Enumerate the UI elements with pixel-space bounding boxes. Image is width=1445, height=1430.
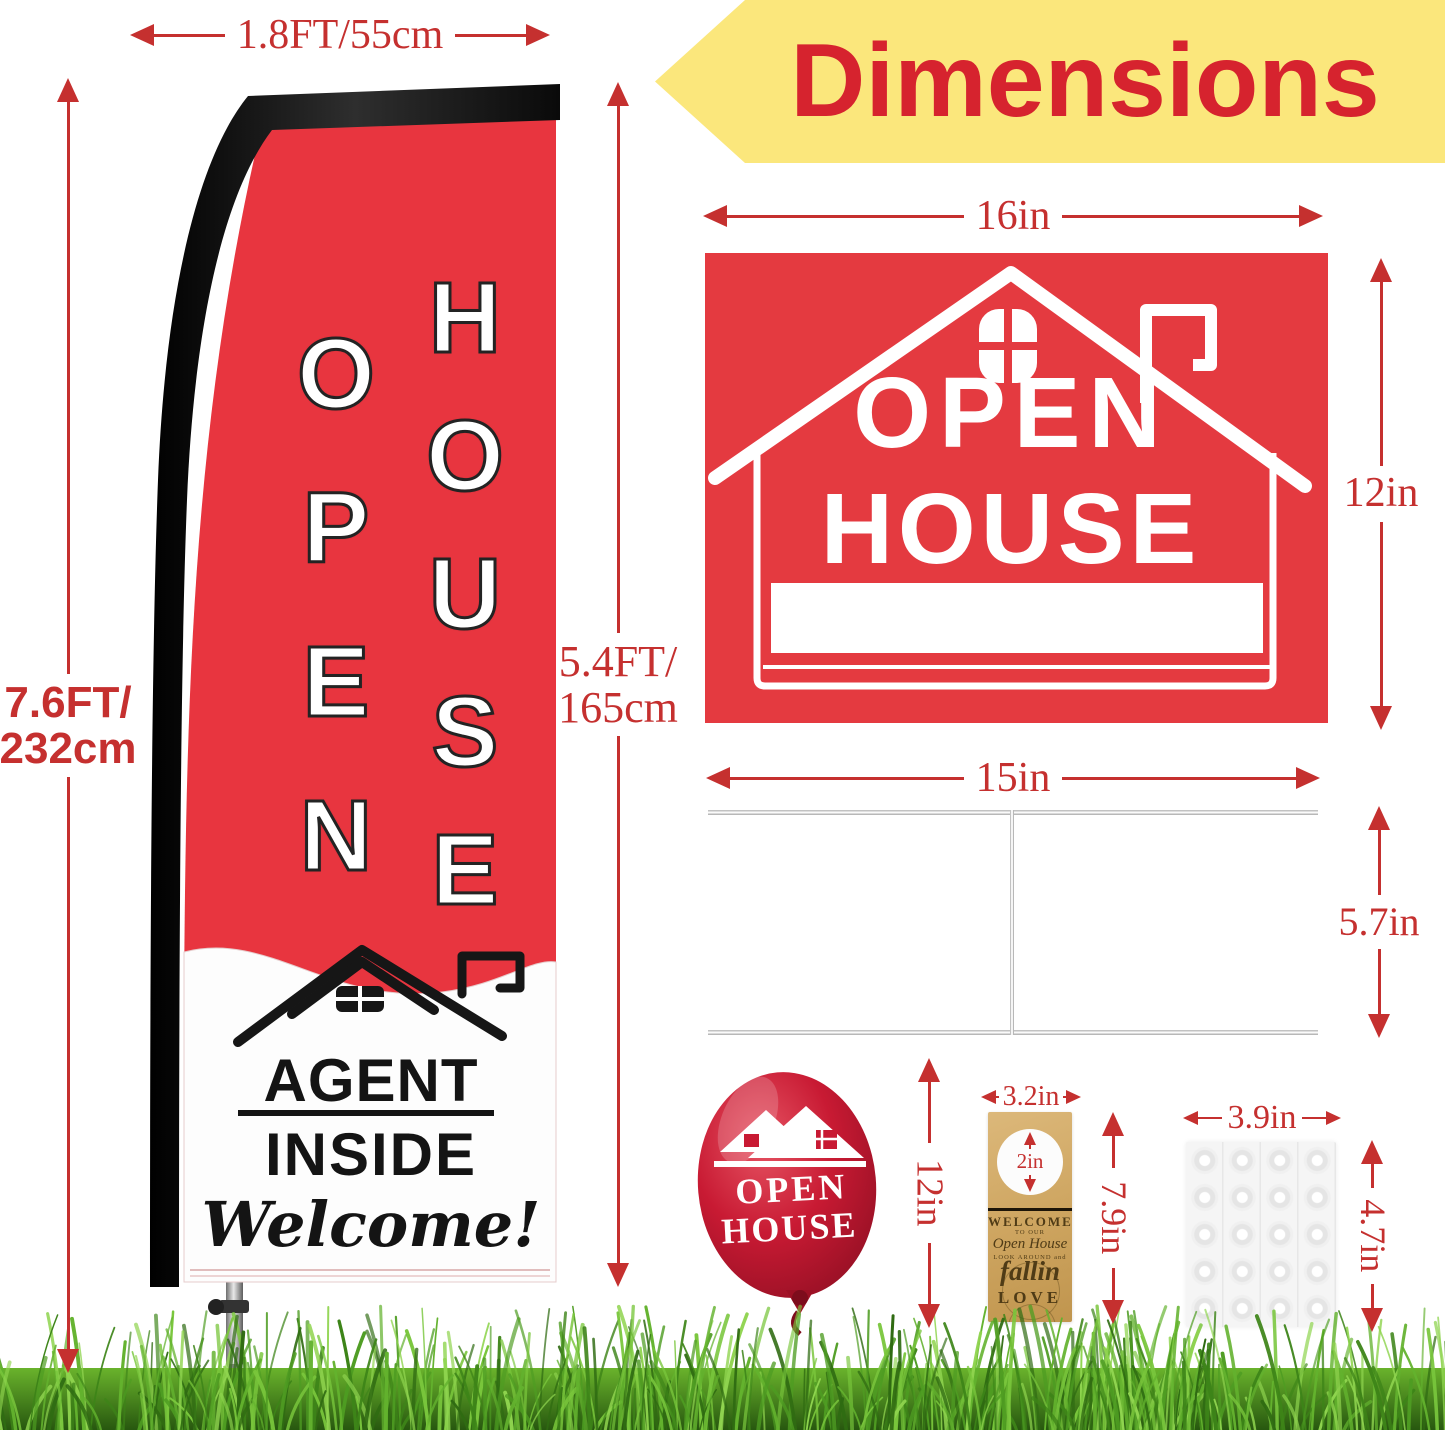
arrow-up-icon: [607, 82, 629, 106]
arrow-down-icon: [1102, 1300, 1124, 1324]
arrow-down-icon: [918, 1304, 940, 1328]
grass-blade: [1323, 1338, 1324, 1430]
arrow-down-icon: [1024, 1179, 1036, 1192]
grass-blade: [1180, 1376, 1182, 1430]
balloon-text-house: HOUSE: [720, 1204, 858, 1251]
sign-text-open: OPEN: [853, 357, 1168, 469]
hanger-divider: [988, 1208, 1072, 1211]
arrow-up-icon: [1370, 258, 1392, 282]
arrow-right-icon: [1066, 1090, 1081, 1104]
arrow-up-icon: [1024, 1132, 1036, 1145]
hanger-hole-dimension: 2in: [1012, 1132, 1048, 1192]
arrow-left-icon: [130, 24, 154, 46]
arrow-right-icon: [1299, 205, 1323, 227]
arrow-up-icon: [57, 78, 79, 102]
dots-width-label: 3.9in: [1222, 1099, 1303, 1137]
hanger-width-label: 3.2in: [999, 1081, 1064, 1113]
flag-width-dimension: 1.8FT/55cm: [130, 12, 550, 58]
flag-width-label: 1.8FT/55cm: [225, 11, 456, 59]
sign-width-label: 16in: [964, 192, 1063, 240]
hanger-line-welcome: WELCOME: [988, 1214, 1072, 1230]
hanger-line-to-our: TO OUR: [988, 1229, 1072, 1236]
grass-blade: [308, 1322, 309, 1430]
grass-blade: [311, 1342, 312, 1430]
stake-height-dimension: 5.7in: [1324, 806, 1434, 1038]
open-house-sign: OPEN HOUSE: [705, 253, 1328, 728]
balloon-height-dimension: 12in: [909, 1058, 949, 1328]
flag-total-height-label: 7.6FT/232cm: [0, 674, 137, 778]
stake-width-label: 15in: [964, 754, 1063, 802]
arrow-down-icon: [1361, 1308, 1383, 1332]
sign-blank-box: [771, 583, 1263, 653]
stake-width-dimension: 15in: [706, 755, 1320, 801]
arrow-left-icon: [706, 767, 730, 789]
panel-underline: [238, 1110, 494, 1116]
dots-height-dimension: 4.7in: [1352, 1140, 1392, 1332]
arrow-down-icon: [607, 1263, 629, 1287]
house-window-icon: [336, 986, 384, 1012]
hanger-width-dimension: 3.2in: [981, 1082, 1081, 1112]
flag-word-house: HOUSE: [407, 262, 522, 952]
arrow-right-icon: [1326, 1111, 1341, 1125]
arrow-down-icon: [1368, 1014, 1390, 1038]
hanger-hole-label: 2in: [1017, 1149, 1044, 1175]
arrow-right-icon: [1296, 767, 1320, 789]
grass-blade: [637, 1375, 639, 1430]
arrow-left-icon: [1183, 1111, 1198, 1125]
stake-height-label: 5.7in: [1338, 895, 1419, 949]
arrow-up-icon: [1361, 1140, 1383, 1164]
hanger-height-label: 7.9in: [1094, 1181, 1131, 1254]
arrow-right-icon: [526, 24, 550, 46]
balloon-height-label: 12in: [909, 1159, 949, 1227]
flag-panel-inside: INSIDE: [186, 1120, 556, 1189]
dots-height-label: 4.7in: [1353, 1199, 1390, 1272]
hanger-height-dimension: 7.9in: [1093, 1112, 1133, 1324]
arrow-left-icon: [703, 205, 727, 227]
hanger-line-open-house: Open House: [988, 1236, 1072, 1253]
arrow-left-icon: [981, 1090, 996, 1104]
grass-blade: [484, 1359, 485, 1430]
arrow-up-icon: [1368, 806, 1390, 830]
dots-width-dimension: 3.9in: [1183, 1100, 1341, 1136]
sign-text-house: HOUSE: [821, 473, 1202, 585]
flag-panel-welcome: Welcome!: [186, 1188, 556, 1261]
title-banner: Dimensions: [655, 0, 1445, 163]
flag-total-height-dimension: 7.6FT/232cm: [3, 78, 133, 1373]
flag-fabric-height-dimension: 5.4FT/165cm: [553, 82, 683, 1287]
stake-center-wire: [1010, 810, 1014, 1035]
grass: [0, 1280, 1445, 1430]
sign-height-label: 12in: [1344, 466, 1419, 522]
grass-blade: [1184, 1362, 1185, 1430]
arrow-up-icon: [918, 1058, 940, 1082]
grass-blade: [386, 1354, 387, 1430]
arrow-up-icon: [1102, 1112, 1124, 1136]
flag-fabric-height-label: 5.4FT/165cm: [558, 633, 678, 737]
page-title: Dimensions: [790, 22, 1379, 141]
arrow-down-icon: [57, 1349, 79, 1373]
arrow-down-icon: [1370, 706, 1392, 730]
product-dimensions-diagram: OPEN HOUSE AGENT INSIDE Welcome! 1.8FT/5…: [0, 0, 1445, 1430]
flag-word-open: OPEN: [278, 318, 393, 934]
sign-height-dimension: 12in: [1331, 258, 1431, 730]
sign-width-dimension: 16in: [703, 193, 1323, 239]
flag-panel-agent: AGENT: [186, 1046, 556, 1115]
grass-blade: [1090, 1347, 1091, 1430]
